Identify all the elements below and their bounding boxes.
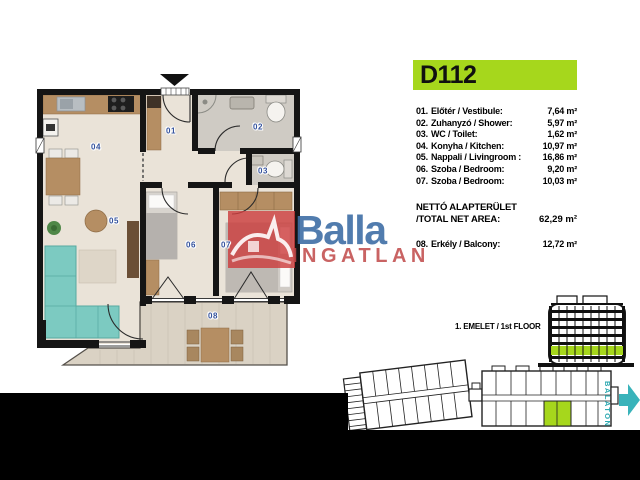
room-row: 03.WC / Toilet:1,62 m² xyxy=(416,129,577,141)
toilet xyxy=(267,102,285,122)
stove xyxy=(108,96,134,112)
dining-table xyxy=(46,158,80,195)
room-row: 01.Előtér / Vestibule:7,64 m² xyxy=(416,106,577,118)
highlighted-unit xyxy=(544,401,571,426)
entrance-arrow-icon xyxy=(160,74,189,86)
rug xyxy=(79,250,116,283)
balaton-direction-label: BALATON xyxy=(603,381,612,427)
coffee-table xyxy=(85,210,107,232)
wc-basin xyxy=(251,156,263,165)
plan-label-kitchen: 04 xyxy=(91,143,101,152)
unit-code: D112 xyxy=(413,60,577,90)
plan-label-balcony: 08 xyxy=(208,312,218,321)
net-area-label-en: /TOTAL NET AREA: xyxy=(416,214,536,226)
wc-toilet xyxy=(266,161,284,177)
highlighted-floor xyxy=(551,346,623,355)
room-row: 02.Zuhanyzó / Shower:5,97 m² xyxy=(416,118,577,130)
glass-wall xyxy=(150,299,286,302)
building-elevation xyxy=(538,296,634,367)
brand-subtitle: INGATLAN xyxy=(292,245,430,268)
plan-label-wc: 03 xyxy=(258,167,268,176)
balcony-row: 08.Erkély / Balcony:12,72 m² xyxy=(416,239,577,251)
washbasin xyxy=(230,97,254,109)
balcony-table xyxy=(201,328,229,362)
tv-cabinet xyxy=(127,221,139,278)
plan-label-shower: 02 xyxy=(253,123,263,132)
net-area-label-hu: NETTÓ ALAPTERÜLET xyxy=(416,202,536,214)
threshold xyxy=(161,88,189,95)
desk xyxy=(146,260,159,295)
room-row: 05.Nappali / Livingroom :16,86 m² xyxy=(416,152,577,164)
site-plan-connector xyxy=(469,389,482,401)
room-row: 04.Konyha / Kitchen:10,97 m² xyxy=(416,141,577,153)
black-bar-bottom xyxy=(0,430,640,480)
site-plan xyxy=(343,360,618,432)
net-area-value: 62,29 m² xyxy=(529,214,577,225)
balaton-arrow-icon xyxy=(619,384,640,416)
site-plan-west-wing xyxy=(343,360,472,432)
floor-indicator: 1. EMELET / 1st FLOOR xyxy=(455,322,541,331)
net-area-block: NETTÓ ALAPTERÜLET /TOTAL NET AREA: xyxy=(416,202,536,225)
plan-label-hall: 01 xyxy=(166,127,176,136)
room-list: 01.Előtér / Vestibule:7,64 m² 02.Zuhanyz… xyxy=(416,106,577,187)
site-plan-east-wing xyxy=(482,366,618,426)
room-row: 07.Szoba / Bedroom:10,03 m² xyxy=(416,176,577,188)
room-row: 06.Szoba / Bedroom:9,20 m² xyxy=(416,164,577,176)
brand-house-icon xyxy=(228,211,295,273)
plan-label-livingroom: 05 xyxy=(109,217,119,226)
plan-label-bedroom1: 06 xyxy=(186,241,196,250)
unit-code-badge: D112 xyxy=(413,60,577,90)
floorplan-listing-image: D112 01.Előtér / Vestibule:7,64 m² 02.Zu… xyxy=(0,0,640,480)
plan-label-bedroom2: 07 xyxy=(221,241,231,250)
